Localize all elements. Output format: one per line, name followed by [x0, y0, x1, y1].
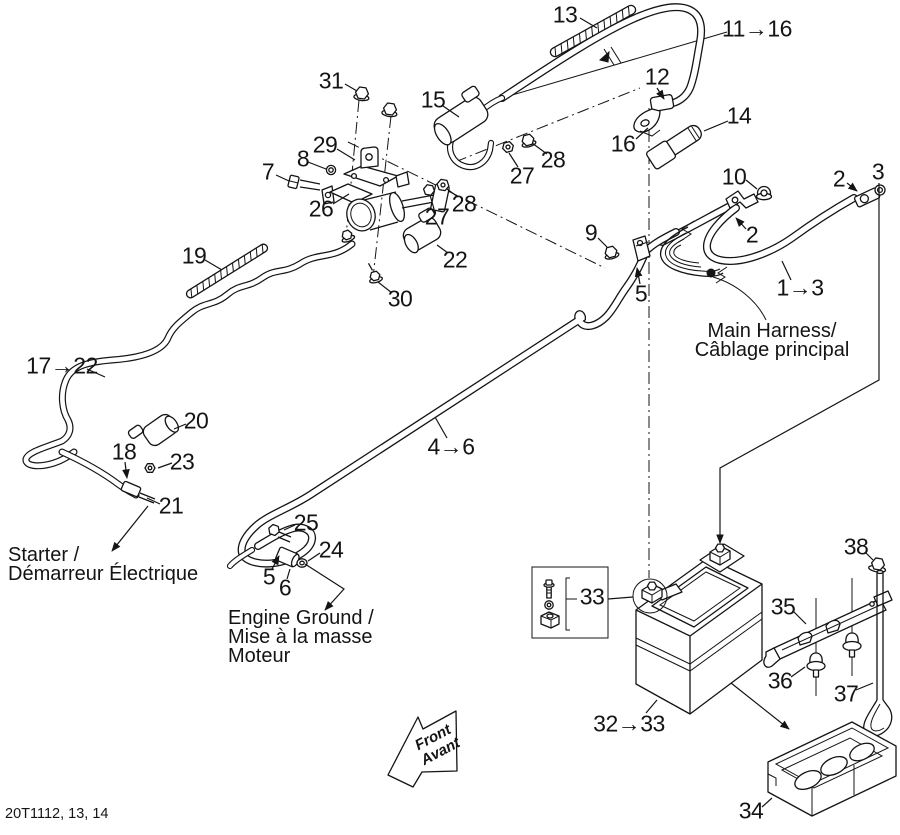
callout-30: 30	[388, 286, 413, 313]
callout-22: 22	[443, 247, 468, 274]
callout-10: 10	[722, 164, 747, 191]
starter-line2: Démarreur Électrique	[8, 565, 198, 584]
callout-25: 25	[294, 510, 319, 537]
starter-leader	[112, 506, 148, 551]
nut-9	[603, 245, 620, 260]
battery	[633, 544, 762, 714]
break-arrow-icon	[600, 52, 609, 62]
callout-4-6: 4→6	[427, 434, 474, 461]
main-harness-label: Main Harness/ Câblage principal	[695, 322, 850, 360]
parts-diagram-page: Main Harness/ Câblage principal Starter …	[0, 0, 900, 835]
callout-2-left: 2	[746, 222, 758, 249]
callout-24: 24	[319, 537, 344, 564]
callout-12: 12	[645, 64, 670, 91]
engine-ground-line3: Moteur	[228, 647, 374, 666]
callout-19: 19	[182, 243, 207, 270]
nut-23	[145, 464, 155, 473]
callout-31: 31	[319, 68, 344, 95]
battery-tray-34	[768, 722, 896, 816]
bumper-36a	[843, 633, 861, 657]
clamp-5	[633, 236, 650, 261]
callout-2-right: 2	[833, 166, 845, 193]
callout-28-upper: 28	[541, 147, 566, 174]
nut-31b	[382, 102, 399, 117]
bracket-2	[726, 191, 758, 208]
callout-13: 13	[553, 2, 578, 29]
callout-1-3: 1→3	[776, 275, 823, 302]
harness-dot	[707, 269, 715, 277]
callout-5-clamp: 5	[635, 281, 647, 308]
callout-9: 9	[585, 220, 597, 247]
main-harness-line2: Câblage principal	[695, 341, 850, 360]
callout-29: 29	[313, 132, 338, 159]
document-code: 20T1112, 13, 14	[5, 806, 108, 822]
engine-ground-label: Engine Ground / Mise à la masse Moteur	[228, 609, 374, 666]
callout-32-33: 32→33	[593, 711, 665, 738]
callout-6: 6	[279, 575, 291, 602]
starter-label: Starter / Démarreur Électrique	[8, 546, 198, 584]
nut-31	[354, 86, 371, 101]
callout-33: 33	[580, 584, 605, 611]
callout-28-mid: 28	[452, 191, 477, 218]
callout-14: 14	[727, 103, 752, 130]
callout-38: 38	[844, 534, 869, 561]
engine-ground-leader	[305, 564, 344, 610]
callout-3: 3	[872, 159, 884, 186]
callout-18: 18	[112, 439, 137, 466]
callout-27-mid: 27	[425, 204, 450, 231]
callout-16: 16	[611, 131, 636, 158]
terminal-12-16	[634, 94, 674, 136]
callout-20: 20	[184, 408, 209, 435]
callout-37: 37	[834, 681, 859, 708]
callout-5-ground: 5	[263, 564, 275, 591]
bolt-7	[288, 175, 320, 190]
callout-27-upper: 27	[510, 163, 535, 190]
bolt-33	[544, 580, 554, 598]
terminal-3	[854, 185, 885, 207]
callout-26: 26	[309, 196, 334, 223]
callout-36: 36	[768, 668, 793, 695]
part-14	[645, 123, 703, 170]
callout-34: 34	[739, 798, 764, 825]
callout-23: 23	[170, 449, 195, 476]
callout-8: 8	[297, 146, 309, 173]
callout-11-16: 11→16	[722, 16, 792, 43]
bumper-36b	[807, 653, 825, 677]
nut-10	[757, 187, 772, 200]
callout-17-22: 17→22	[26, 353, 98, 380]
callout-35: 35	[771, 594, 796, 621]
diagram-line-art	[0, 0, 900, 835]
callout-21: 21	[159, 493, 184, 520]
callout-7: 7	[262, 159, 274, 186]
square-nut-33	[541, 612, 559, 628]
callout-15: 15	[421, 87, 446, 114]
